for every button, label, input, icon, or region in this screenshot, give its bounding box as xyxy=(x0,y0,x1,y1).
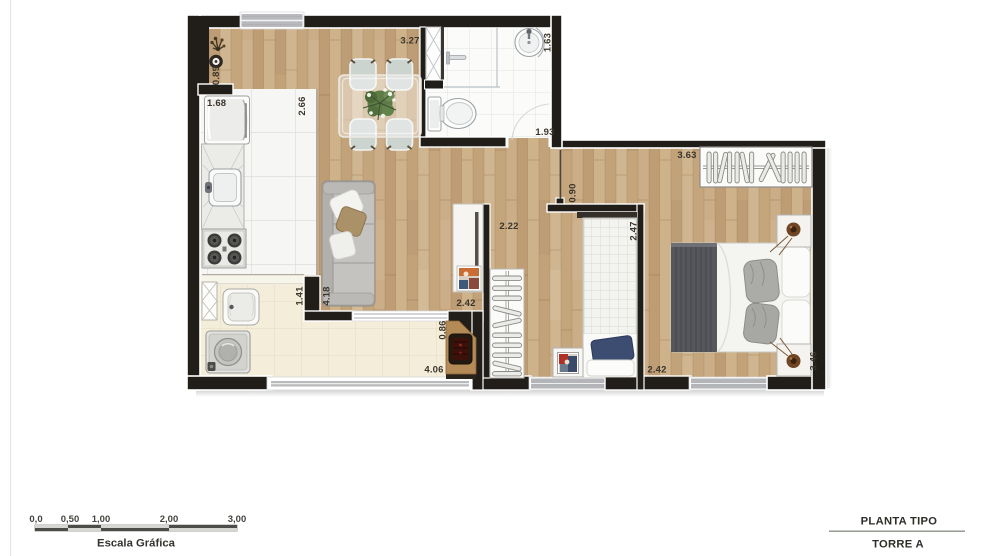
svg-text:0.90: 0.90 xyxy=(568,183,579,202)
svg-text:2.22: 2.22 xyxy=(499,221,518,232)
svg-text:4.18: 4.18 xyxy=(322,286,333,305)
svg-text:1.68: 1.68 xyxy=(207,98,226,109)
svg-text:2.66: 2.66 xyxy=(297,96,308,115)
svg-text:2.42: 2.42 xyxy=(456,298,475,309)
svg-text:0.89: 0.89 xyxy=(211,66,222,85)
svg-text:2,00: 2,00 xyxy=(160,514,179,525)
svg-text:1.93: 1.93 xyxy=(535,127,554,138)
svg-text:1.41: 1.41 xyxy=(295,286,306,306)
svg-text:3,00: 3,00 xyxy=(228,514,247,525)
svg-text:4.06: 4.06 xyxy=(424,365,443,376)
svg-text:3.63: 3.63 xyxy=(677,150,696,161)
svg-text:2.47: 2.47 xyxy=(629,221,640,240)
svg-text:0.86: 0.86 xyxy=(438,320,449,339)
svg-text:PLANTA TIPO: PLANTA TIPO xyxy=(861,516,938,528)
svg-text:1,00: 1,00 xyxy=(92,514,111,525)
svg-text:0,0: 0,0 xyxy=(29,514,42,525)
svg-text:3.27: 3.27 xyxy=(400,36,419,47)
svg-text:3.46: 3.46 xyxy=(809,351,820,370)
svg-text:Escala Gráfica: Escala Gráfica xyxy=(97,538,176,550)
svg-text:1.63: 1.63 xyxy=(543,33,554,52)
svg-text:0,50: 0,50 xyxy=(61,514,80,525)
svg-text:TORRE A: TORRE A xyxy=(872,539,924,551)
svg-text:2.42: 2.42 xyxy=(647,365,666,376)
